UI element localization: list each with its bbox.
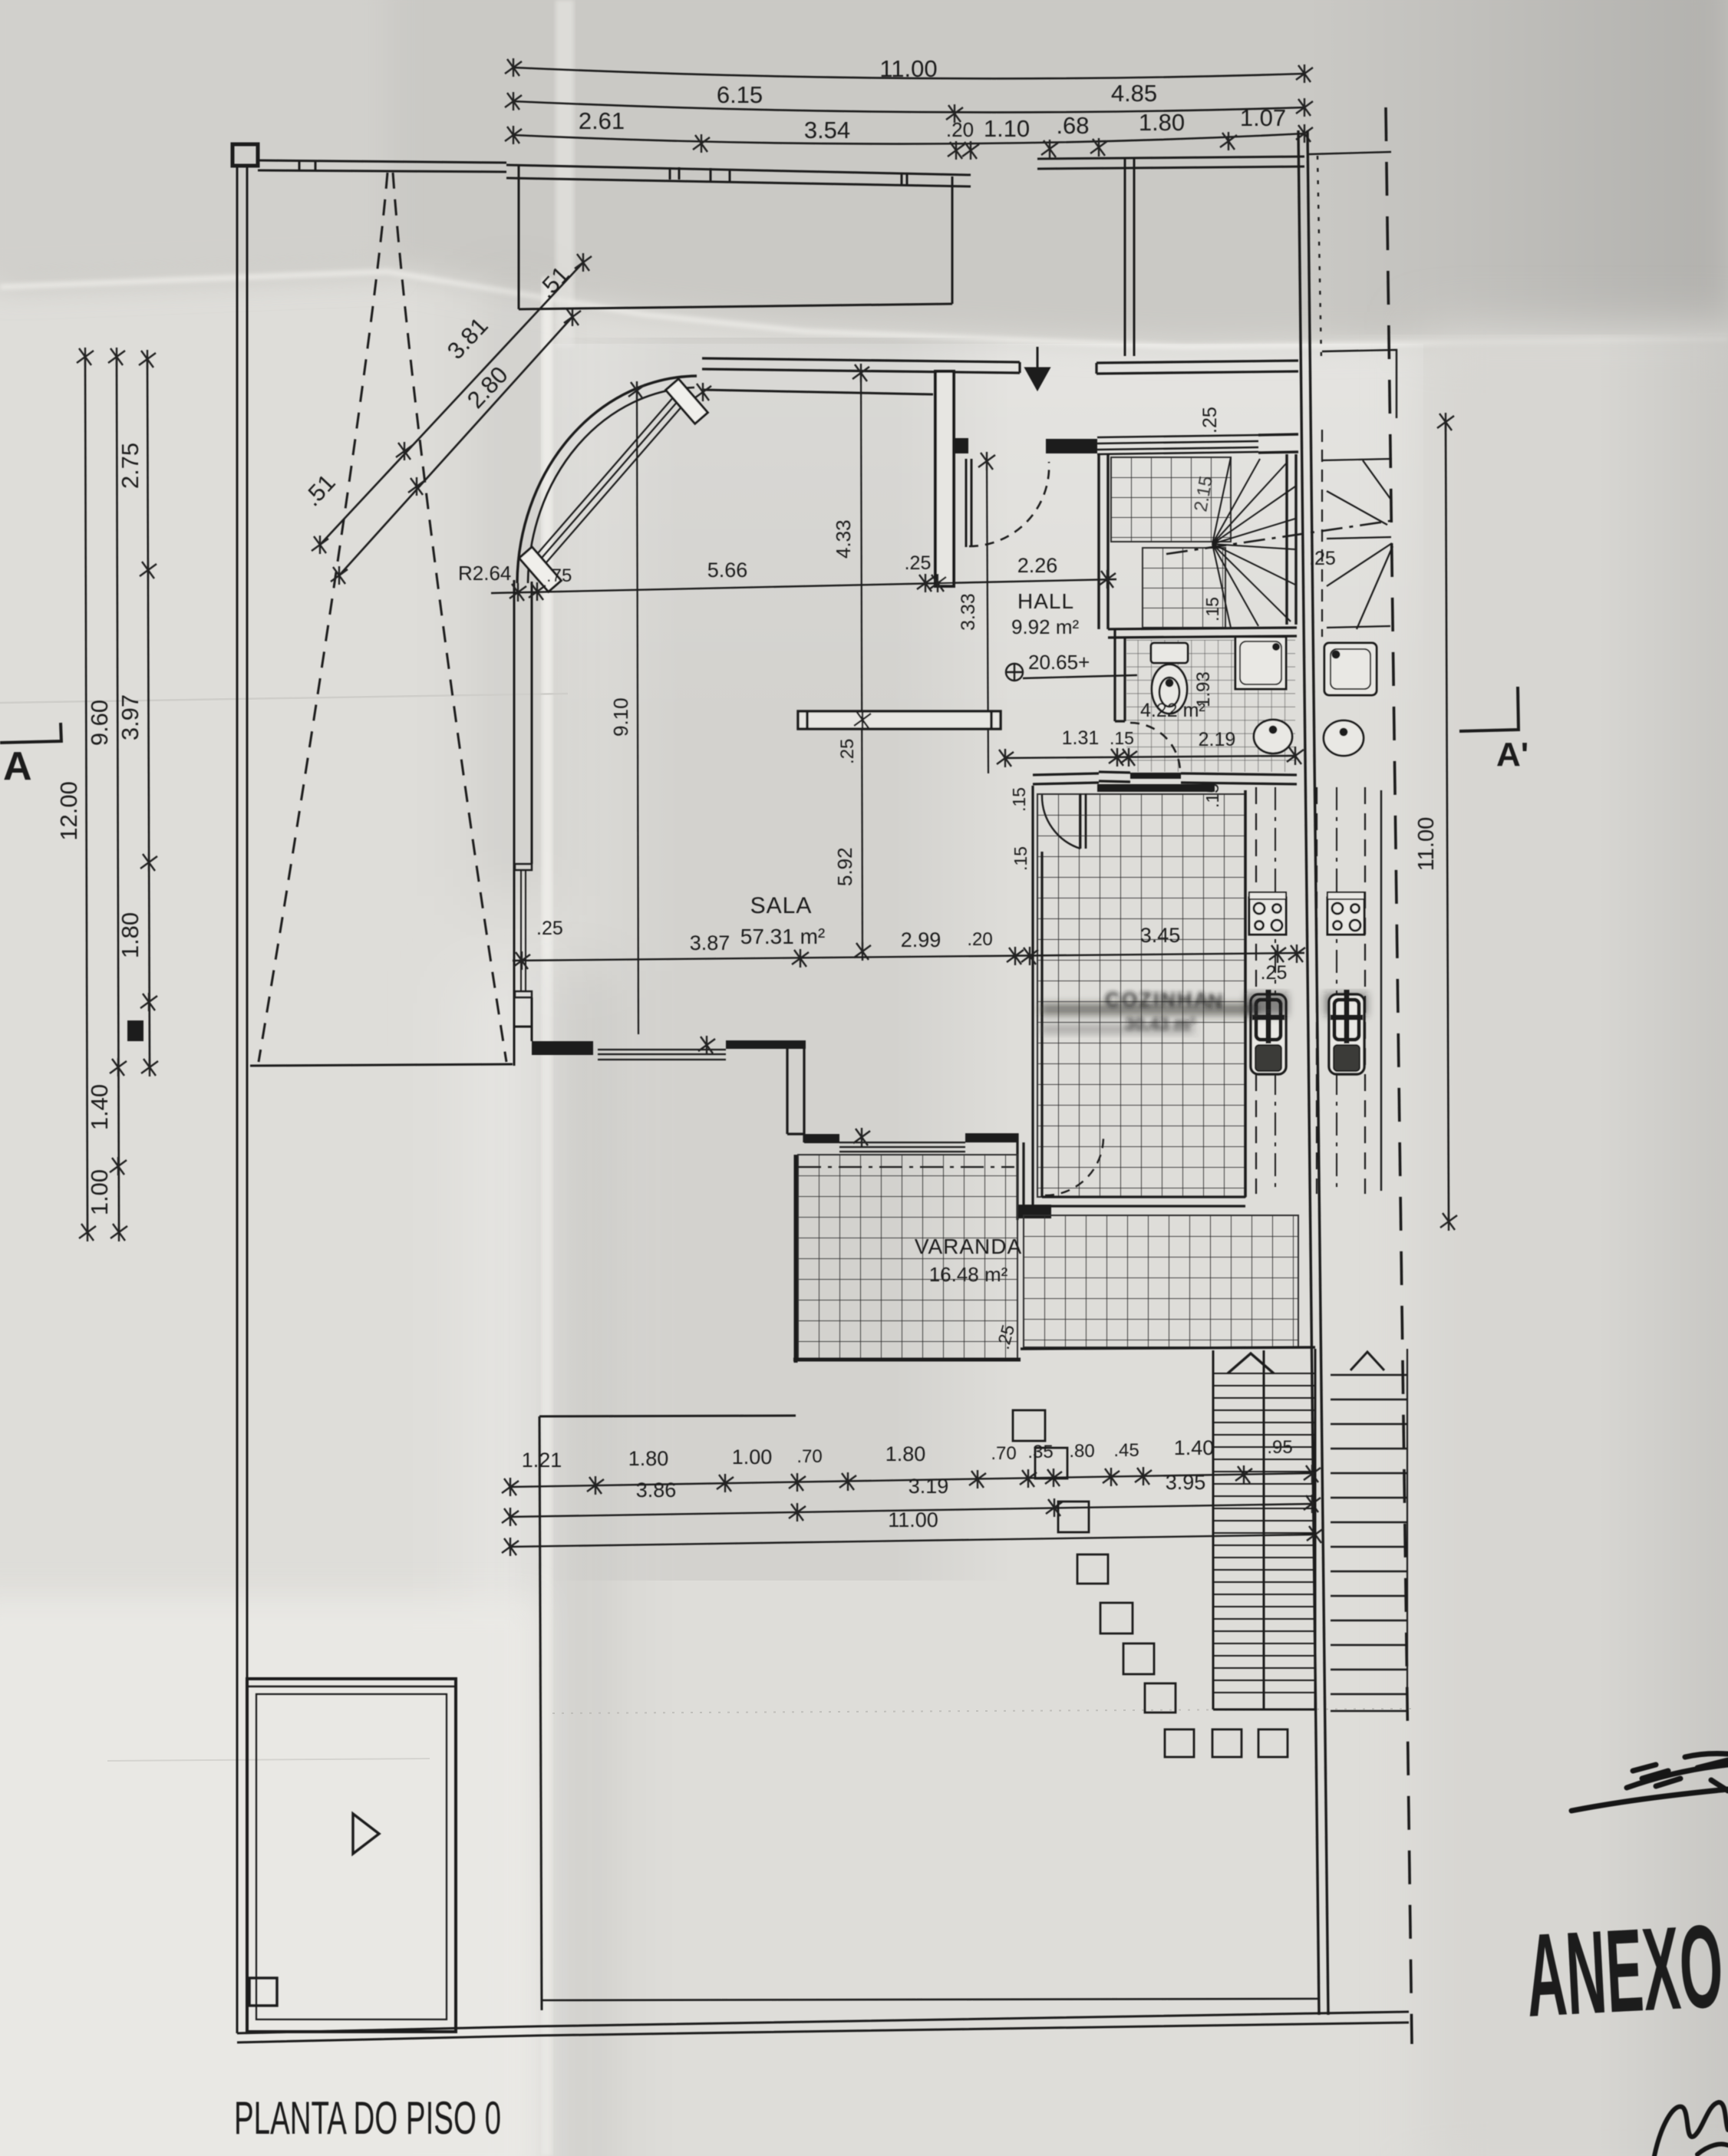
svg-text:2.75: 2.75 <box>117 443 143 489</box>
svg-text:1.80: 1.80 <box>885 1442 926 1465</box>
svg-text:9.60: 9.60 <box>86 700 113 746</box>
svg-text:2.61: 2.61 <box>579 107 625 134</box>
svg-text:9.92 m²: 9.92 m² <box>1011 615 1079 638</box>
svg-text:2.99: 2.99 <box>901 928 941 951</box>
svg-text:2.26: 2.26 <box>1017 554 1058 577</box>
svg-text:.15: .15 <box>1110 728 1134 748</box>
svg-text:1.93: 1.93 <box>1193 671 1214 707</box>
svg-text:.20: .20 <box>946 118 974 141</box>
svg-text:A: A <box>3 744 32 789</box>
svg-text:1.80: 1.80 <box>628 1447 669 1470</box>
svg-text:1.00: 1.00 <box>86 1169 113 1215</box>
svg-text:1.10: 1.10 <box>984 115 1030 142</box>
svg-text:16.48 m²: 16.48 m² <box>929 1263 1008 1286</box>
svg-text:57.31 m²: 57.31 m² <box>740 925 826 948</box>
svg-text:3.87: 3.87 <box>690 931 730 954</box>
svg-text:PLANTA DO PISO 0: PLANTA DO PISO 0 <box>234 2092 501 2144</box>
svg-text:2.19: 2.19 <box>1199 729 1236 750</box>
svg-text:.70: .70 <box>796 1446 822 1467</box>
svg-text:VARANDA: VARANDA <box>915 1235 1022 1258</box>
svg-text:3.54: 3.54 <box>804 117 850 143</box>
svg-text:1.40: 1.40 <box>86 1084 113 1130</box>
svg-text:1.07: 1.07 <box>1240 104 1286 131</box>
svg-text:.35: .35 <box>1027 1442 1053 1462</box>
svg-text:6.15: 6.15 <box>717 81 763 108</box>
svg-text:.80: .80 <box>1069 1441 1094 1462</box>
svg-text:.45: .45 <box>1113 1440 1139 1461</box>
svg-text:4.85: 4.85 <box>1111 80 1157 107</box>
svg-text:HALL: HALL <box>1017 589 1074 613</box>
svg-text:11.00: 11.00 <box>1414 817 1439 871</box>
svg-text:1.80: 1.80 <box>1139 109 1185 136</box>
svg-text:.25: .25 <box>905 552 932 574</box>
svg-text:.20: .20 <box>967 929 992 950</box>
svg-text:12.00: 12.00 <box>55 781 82 841</box>
svg-text:1.40: 1.40 <box>1174 1436 1215 1459</box>
svg-text:ANEXO: ANEXO <box>1523 1900 1726 2042</box>
svg-text:3.19: 3.19 <box>909 1475 949 1498</box>
svg-text:.15: .15 <box>1202 597 1222 621</box>
svg-text:R2.64: R2.64 <box>458 562 511 585</box>
svg-text:.15: .15 <box>1009 787 1029 812</box>
svg-text:1.31: 1.31 <box>1062 727 1100 749</box>
svg-text:11.00: 11.00 <box>888 1508 938 1531</box>
svg-text:SALA: SALA <box>750 893 813 918</box>
svg-text:.70: .70 <box>991 1443 1016 1464</box>
svg-text:1.21: 1.21 <box>522 1449 562 1472</box>
svg-text:.25: .25 <box>536 918 563 939</box>
svg-text:11.00: 11.00 <box>879 55 937 82</box>
svg-text:4.33: 4.33 <box>832 519 855 559</box>
svg-text:.75: .75 <box>546 565 572 586</box>
svg-text:.25: .25 <box>1309 548 1336 569</box>
svg-text:5.66: 5.66 <box>707 559 748 582</box>
svg-text:3.33: 3.33 <box>958 593 979 631</box>
svg-text:.68: .68 <box>1056 112 1089 139</box>
svg-text:3.86: 3.86 <box>636 1479 677 1502</box>
svg-text:1.00: 1.00 <box>732 1446 773 1469</box>
svg-text:20.65+: 20.65+ <box>1028 651 1090 674</box>
svg-text:.25: .25 <box>837 739 858 764</box>
svg-text:.25: .25 <box>1261 962 1288 984</box>
svg-text:3.45: 3.45 <box>1140 924 1181 947</box>
svg-text:3.97: 3.97 <box>117 694 143 740</box>
svg-text:1.80: 1.80 <box>117 912 143 958</box>
svg-text:.25: .25 <box>1199 407 1221 434</box>
svg-text:9.10: 9.10 <box>609 697 632 737</box>
svg-text:5.92: 5.92 <box>833 847 856 886</box>
svg-text:.15: .15 <box>1011 846 1031 871</box>
svg-text:3.95: 3.95 <box>1166 1471 1206 1494</box>
svg-text:A': A' <box>1496 736 1528 773</box>
